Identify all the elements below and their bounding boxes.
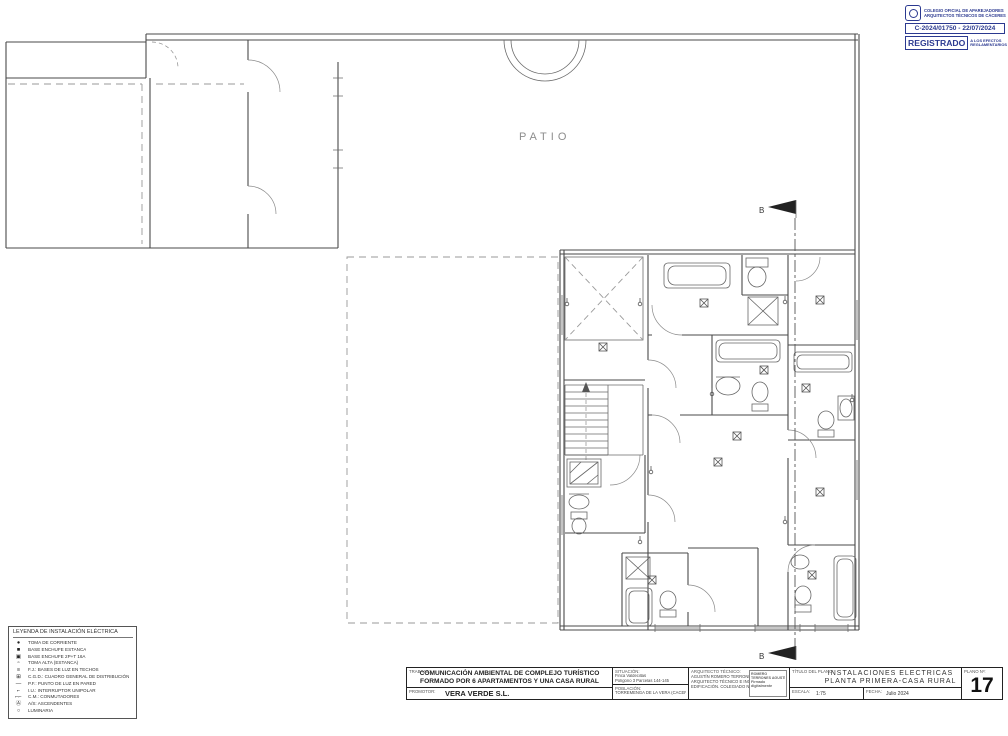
legend-item: ⊞C.G.D.: CUADRO GENERAL DE DISTRIBUCIÓN xyxy=(13,674,133,681)
poblacion-label: POBLACIÓN: xyxy=(615,686,641,691)
legend-item: ▫TOMA ALTA (ESTANCA) xyxy=(13,660,133,667)
title-block-titulo-cell: TÍTULO DEL PLANO: INSTALACIONES ELECTRIC… xyxy=(790,668,962,699)
plano-label: PLANO Nº: xyxy=(964,669,986,674)
legend-item: ⌐⌐C.M.: CONMUTADORES xyxy=(13,694,133,701)
registry-number: C-2024/01750 - 22/07/2024 xyxy=(905,23,1005,34)
situacion-label: SITUACIÓN: xyxy=(615,669,640,674)
floorplan-svg: B B PATIO xyxy=(0,0,1008,736)
section-marker-b-top: B xyxy=(759,206,764,215)
escala-label: ESCALA: xyxy=(792,689,810,694)
stairwell-void xyxy=(565,257,643,340)
titulo-line2: PLANTA PRIMERA-CASA RURAL xyxy=(825,678,957,686)
legend-symbol: ▫ xyxy=(13,660,24,667)
arquitecto-line3: EDIFICACIÓN. COLEGIADO Nº 708 xyxy=(691,684,749,689)
title-block: TRABAJO: COMUNICACIÓN AMBIENTAL DE COMPL… xyxy=(406,667,1003,700)
legend-symbol: ■ xyxy=(13,647,24,654)
legend-item: ▣BASE ENCHUFE 2P+T 16A xyxy=(13,654,133,661)
patio-walls xyxy=(6,34,859,630)
legend-item: ⌐I.U.: INTERRUPTOR UNIPOLAR xyxy=(13,688,133,695)
section-marker-b-bottom: B xyxy=(759,652,764,661)
patio-label: PATIO xyxy=(519,131,570,143)
college-name-line2: ARQUITECTOS TÉCNICOS DE CÁCERES xyxy=(924,13,1006,18)
section-marker-triangle-bottom xyxy=(768,646,796,660)
fecha-label: FECHA: xyxy=(866,689,882,694)
legend-symbol: — xyxy=(13,681,24,688)
legend-symbol: ⌐ xyxy=(13,688,24,695)
legend-symbol: ▣ xyxy=(13,654,24,661)
section-line: B B xyxy=(759,200,796,661)
promotor-value: VERA VERDE S.L. xyxy=(445,689,509,698)
title-block-trabajo-cell: TRABAJO: COMUNICACIÓN AMBIENTAL DE COMPL… xyxy=(407,668,613,699)
titulo-line1: INSTALACIONES ELECTRICAS xyxy=(828,670,953,678)
arquitecto-label: ARQUITECTO TÉCNICO: xyxy=(691,669,741,674)
college-logo-icon xyxy=(905,5,921,21)
drawing-sheet: B B PATIO LEYENDA DE INSTALACIÓN ELÉCTRI… xyxy=(0,0,1008,736)
section-marker-triangle-top xyxy=(768,200,796,214)
trabajo-line2: FORMADO POR 6 APARTAMENTOS Y UNA CASA RU… xyxy=(420,678,599,686)
terrace-dashed-outline xyxy=(347,257,558,623)
situacion-line2: Polígono 3 Parcelas 144-145 xyxy=(615,679,686,684)
title-block-arquitecto-cell: ARQUITECTO TÉCNICO: AGUSTÍN ROMERO TERRO… xyxy=(689,668,790,699)
legend-symbol: ● xyxy=(13,640,24,647)
legend-symbol: ⊞ xyxy=(13,674,24,681)
poblacion-value: TORREMENGA DE LA VERA (CÁCERES) xyxy=(615,691,686,696)
plano-number: 17 xyxy=(970,674,993,698)
digital-signature-stamp: ROMERO TERRONES AGUSTÍN Firmado digitalm… xyxy=(749,670,787,697)
escala-value: 1:75 xyxy=(816,691,826,697)
legend-symbol: Ⓐ xyxy=(13,701,24,708)
legend-item: ■BASE ENCHUFE ESTANCA xyxy=(13,647,133,654)
electrical-legend: LEYENDA DE INSTALACIÓN ELÉCTRICA ●TOMA D… xyxy=(8,626,137,719)
title-block-situacion-cell: SITUACIÓN: Finca Valdecillas Polígono 3 … xyxy=(613,668,689,699)
trabajo-label: TRABAJO: xyxy=(409,669,430,674)
legend-item: —P.F.: PUNTO DE LUZ EN PARED xyxy=(13,681,133,688)
stair-direction-arrow xyxy=(582,382,590,392)
stairs xyxy=(565,382,643,460)
socket-symbols xyxy=(565,296,854,544)
registration-stamp: COLEGIO OFICIAL DE APAREJADORES ARQUITEC… xyxy=(905,5,1005,50)
legend-item: ○LUMINARIA xyxy=(13,708,133,715)
registered-note2: REGLAMENTARIOS xyxy=(970,43,1007,47)
legend-symbol: ○ xyxy=(13,708,24,715)
legend-item: ≡F.J.: BASES DE LUZ EN TECHOS xyxy=(13,667,133,674)
trabajo-line1: COMUNICACIÓN AMBIENTAL DE COMPLEJO TURÍS… xyxy=(420,670,600,678)
legend-item: ●TOMA DE CORRIENTE xyxy=(13,640,133,647)
fecha-value: Julio 2024 xyxy=(886,691,909,697)
titulo-label: TÍTULO DEL PLANO: xyxy=(792,669,834,674)
title-block-plano-cell: PLANO Nº: 17 xyxy=(962,668,1002,699)
registered-label: REGISTRADO xyxy=(905,36,968,50)
promotor-label: PROMOTOR: xyxy=(409,689,435,694)
legend-symbol: ≡ xyxy=(13,667,24,674)
legend-title: LEYENDA DE INSTALACIÓN ELÉCTRICA xyxy=(13,629,133,638)
legend-item: ⒶA/S: ASCENDENTES xyxy=(13,701,133,708)
